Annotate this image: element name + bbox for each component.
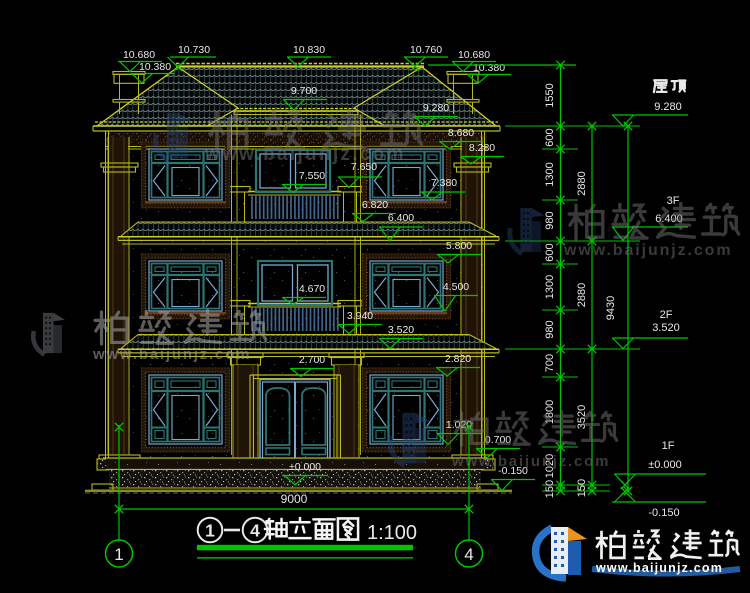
svg-text:www.baijunjz.com: www.baijunjz.com [92,346,251,363]
svg-text:10.680: 10.680 [123,49,155,61]
svg-text:1:100: 1:100 [367,522,417,544]
svg-text:2880: 2880 [576,171,588,195]
svg-text:1F: 1F [662,440,675,452]
svg-text:8.280: 8.280 [469,142,495,154]
svg-text:5.800: 5.800 [446,240,472,252]
svg-text:10.730: 10.730 [178,44,210,56]
svg-text:1300: 1300 [544,275,556,299]
svg-text:6.820: 6.820 [362,199,388,211]
svg-text:4: 4 [464,545,473,564]
svg-text:-0.150: -0.150 [648,507,679,519]
svg-text:10.680: 10.680 [458,49,490,61]
svg-text:3F: 3F [667,195,680,207]
svg-text:3.940: 3.940 [347,310,373,322]
svg-text:2.700: 2.700 [299,354,325,366]
svg-text:www.baijunjz.com: www.baijunjz.com [563,242,733,259]
svg-text:1: 1 [205,521,215,541]
svg-text:9.280: 9.280 [423,102,449,114]
svg-text:www.baijunjz.com: www.baijunjz.com [595,561,723,575]
svg-text:10.830: 10.830 [293,44,325,56]
svg-text:980: 980 [544,320,556,338]
svg-text:9.280: 9.280 [654,101,682,113]
svg-text:2.820: 2.820 [445,353,471,365]
svg-text:150: 150 [544,480,556,498]
svg-text:2F: 2F [660,309,673,321]
svg-text:www.baijunjz.com: www.baijunjz.com [204,144,406,165]
svg-text:10.760: 10.760 [410,44,442,56]
svg-text:3.520: 3.520 [388,324,414,336]
svg-text:7.550: 7.550 [299,170,325,182]
svg-text:2880: 2880 [576,283,588,307]
svg-text:1300: 1300 [544,162,556,186]
svg-text:±0.000: ±0.000 [289,461,321,473]
svg-text:980: 980 [544,211,556,229]
svg-text:±0.000: ±0.000 [648,459,682,471]
svg-text:10.380: 10.380 [139,61,171,73]
svg-text:9000: 9000 [281,492,308,506]
svg-text:1550: 1550 [544,83,556,107]
svg-text:8.680: 8.680 [448,127,474,139]
svg-text:10.380: 10.380 [473,62,505,74]
svg-text:9430: 9430 [605,296,617,320]
svg-text:600: 600 [544,243,556,261]
svg-text:4: 4 [250,521,260,541]
svg-text:600: 600 [544,128,556,146]
svg-text:9.700: 9.700 [291,85,317,97]
svg-text:3.520: 3.520 [652,322,680,334]
svg-text:1: 1 [114,545,123,564]
svg-text:4.500: 4.500 [443,281,469,293]
svg-text:4.670: 4.670 [299,283,325,295]
svg-text:150: 150 [576,479,588,497]
svg-text:700: 700 [544,354,556,372]
svg-text:7.380: 7.380 [431,177,457,189]
svg-text:6.400: 6.400 [388,212,414,224]
svg-text:www.baijunjz.com: www.baijunjz.com [451,453,610,470]
